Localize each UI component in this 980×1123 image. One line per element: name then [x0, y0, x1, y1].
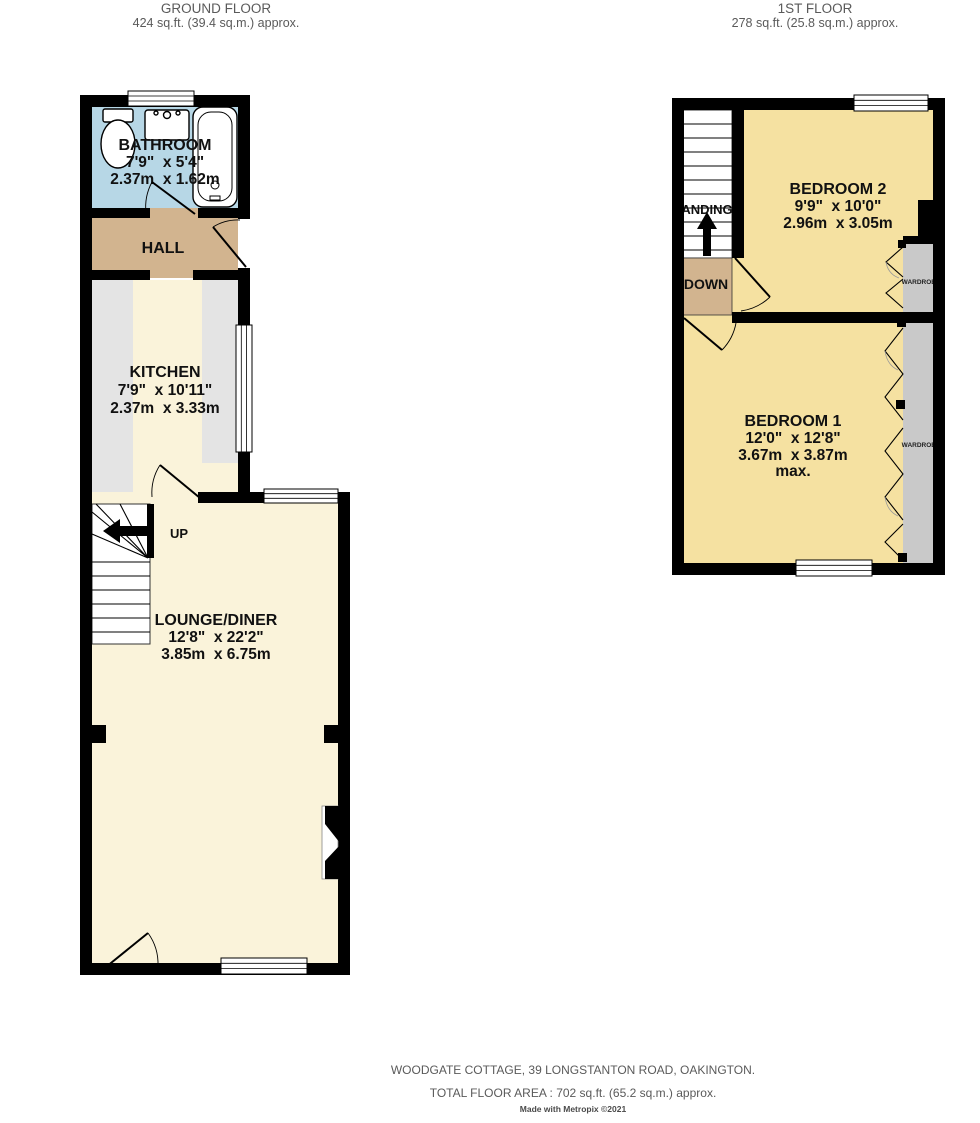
ff-wall-right: [933, 98, 945, 575]
gf-wall-stub-right: [324, 725, 338, 743]
bedroom1-label: BEDROOM 1: [745, 413, 842, 430]
gf-wall-hall-kitchen-right: [193, 270, 238, 280]
gf-wall-left: [80, 95, 92, 975]
gf-wall-right-wide: [338, 492, 350, 975]
kitchen-dims-imperial: 7'9" x 10'11": [118, 382, 212, 399]
ff-wardrobe2-nib: [898, 240, 906, 248]
ff-wardrobe1-nib-top: [897, 318, 906, 327]
bedroom1-dims-max: max.: [775, 463, 810, 480]
bedroom1-dims-imperial: 12'0" x 12'8": [745, 430, 840, 447]
gf-wall-bathroom-hall-left: [92, 208, 150, 218]
ff-wall-bedroom-divider: [732, 312, 945, 323]
ff-wall-wardrobe-top: [903, 236, 933, 244]
sink-tap-icon: [164, 112, 171, 119]
bedroom2-window: [854, 95, 928, 111]
hall-label: HALL: [142, 240, 185, 257]
property-address: WOODGATE COTTAGE, 39 LONGSTANTON ROAD, O…: [373, 1064, 773, 1077]
up-label: UP: [170, 526, 188, 541]
bathroom-dims-metric: 2.37m x 1.62m: [110, 171, 219, 188]
gf-wall-kitchen-lounge: [198, 492, 250, 503]
ff-chimney-breast: [918, 200, 933, 240]
bedroom2-label: BEDROOM 2: [790, 181, 887, 198]
total-floor-area: TOTAL FLOOR AREA : 702 sq.ft. (65.2 sq.m…: [373, 1087, 773, 1100]
gf-wall-stub-left: [92, 725, 106, 743]
gf-stair-wall-stub: [147, 504, 154, 558]
lounge-label: LOUNGE/DINER: [155, 612, 278, 629]
kitchen-window: [236, 325, 252, 452]
lounge-top-window: [264, 489, 338, 503]
bedroom1-window: [796, 560, 872, 576]
bathroom-dims-imperial: 7'9" x 5'4": [126, 154, 204, 171]
sink-tap-handle-left: [154, 111, 158, 115]
lounge-dims-metric: 3.85m x 6.75m: [161, 646, 270, 663]
floorplan-canvas: BATHROOM 7'9" x 5'4" 2.37m x 1.62m HALL …: [0, 0, 980, 1123]
sink-tap-handle-right: [176, 111, 180, 115]
gf-wall-hall-kitchen-left: [92, 270, 150, 280]
lounge-dims-imperial: 12'8" x 22'2": [168, 629, 263, 646]
ff-wall-left: [672, 98, 684, 575]
bedroom2-dims-imperial: 9'9" x 10'0": [795, 198, 882, 215]
footer: WOODGATE COTTAGE, 39 LONGSTANTON ROAD, O…: [373, 1064, 773, 1114]
kitchen-label: KITCHEN: [129, 364, 200, 381]
metropix-credit: Made with Metropix ©2021: [373, 1104, 773, 1114]
bathtub-tap-icon: [210, 196, 220, 200]
down-label: DOWN: [684, 276, 728, 292]
kitchen-counter-right: [202, 280, 238, 463]
bedroom1-dims-metric: 3.67m x 3.87m: [738, 447, 847, 464]
bathroom-window: [128, 91, 194, 106]
lounge-bottom-window: [221, 958, 307, 974]
gf-wall-bottom: [80, 963, 350, 975]
lounge-fireplace: [322, 806, 340, 879]
ff-wardrobe1-nib-mid: [896, 400, 905, 409]
bedroom2-dims-metric: 2.96m x 3.05m: [783, 215, 892, 232]
ff-wall-stairs: [732, 110, 744, 258]
kitchen-dims-metric: 2.37m x 3.33m: [110, 400, 219, 417]
ff-wardrobe1-nib-bottom: [898, 553, 907, 562]
floorplan-page: { "colors": { "wall": "#000000", "bathro…: [0, 0, 980, 1123]
bathroom-label: BATHROOM: [118, 137, 211, 154]
ground-floor-stairs: [92, 504, 154, 644]
gf-wall-bathroom-hall-right: [198, 208, 238, 218]
